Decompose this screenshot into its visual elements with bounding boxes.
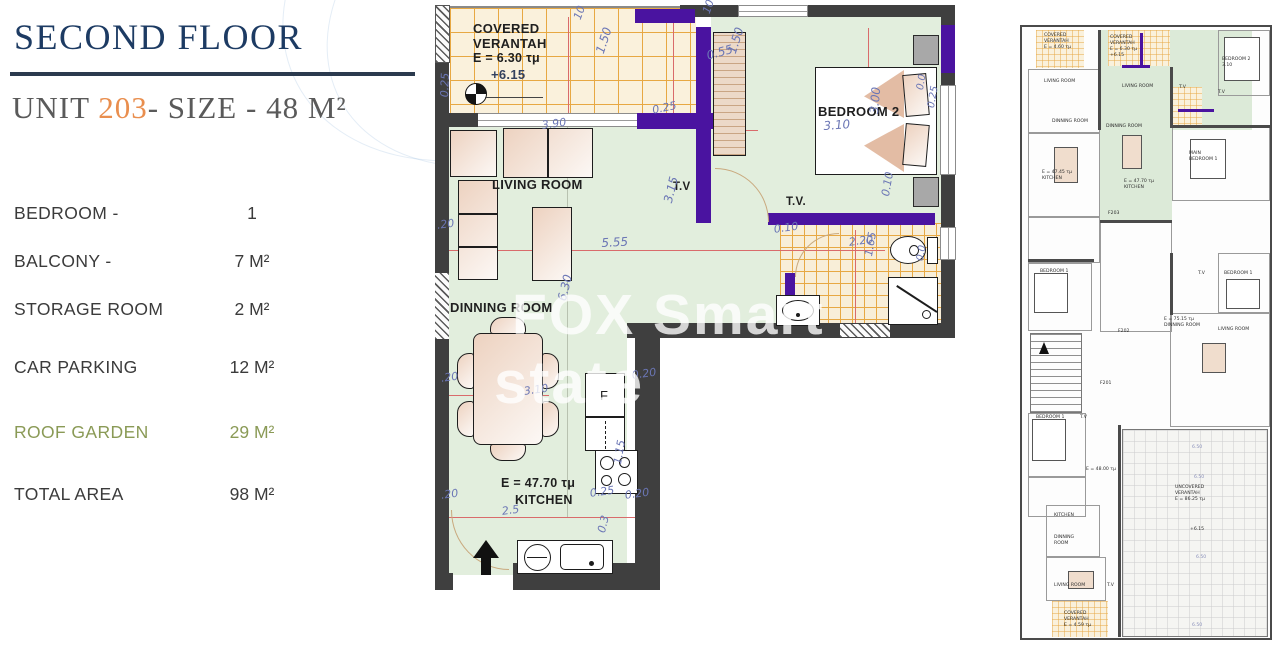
room-label-kitchen: KITCHEN — [515, 493, 573, 507]
room-label-dinning: DINNING ROOM — [450, 300, 553, 315]
dining-chair — [457, 353, 474, 389]
coffee-table — [532, 207, 572, 281]
mini-bed — [1190, 139, 1226, 179]
spec-value: 2 M² — [212, 299, 292, 320]
kitchen-sink-counter — [517, 540, 613, 574]
washing-machine — [524, 544, 551, 571]
unit-subtitle: UNIT 203- SIZE - 48 M² — [12, 90, 347, 126]
pillow — [902, 123, 930, 167]
bathroom-sink — [776, 295, 820, 326]
toilet-tank — [927, 237, 938, 264]
accent-wall — [635, 9, 695, 23]
bedroom-side-window — [940, 85, 956, 175]
dining-chair — [490, 317, 526, 334]
bedside-table — [913, 177, 939, 207]
info-panel: SECOND FLOOR UNIT 203- SIZE - 48 M² BEDR… — [0, 0, 430, 651]
room-label-tv-right: T.V. — [786, 196, 806, 208]
mini-dining-table — [1122, 135, 1142, 169]
level-label: +6.15 — [491, 67, 525, 82]
mini-uncovered-verandah — [1122, 429, 1268, 637]
right-wall — [941, 175, 955, 227]
bed — [815, 67, 937, 175]
pillow — [902, 73, 930, 117]
title-divider — [10, 72, 415, 76]
level-underline — [485, 97, 543, 98]
overview-floor-plan: COVERED VERANTAH E = 4.60 τμCOVERED VERA… — [1020, 25, 1272, 640]
unit-prefix: UNIT — [12, 90, 98, 125]
toilet — [890, 236, 926, 264]
dining-chair — [542, 401, 559, 437]
mini-dining-table — [1054, 147, 1078, 183]
floor-plan-page: SECOND FLOOR UNIT 203- SIZE - 48 M² BEDR… — [0, 0, 1280, 651]
main-floor-plan: F COVERED VERANTAH E — [435, 5, 991, 591]
bedroom-window — [738, 5, 808, 17]
dining-chair — [490, 444, 526, 461]
room-label-bedroom2: BEDROOM 2 — [818, 104, 899, 119]
kitchen-counter — [585, 417, 625, 451]
mini-verandah — [1036, 30, 1084, 68]
spec-value: 12 M² — [212, 357, 292, 378]
spec-row-parking: CAR PARKING 12 M² — [14, 357, 314, 383]
accent-wall — [941, 25, 955, 73]
chaise-sofa — [458, 180, 498, 280]
wall-hatched-segment — [840, 324, 890, 337]
wardrobe — [713, 32, 746, 156]
dining-chair — [457, 401, 474, 437]
overview-label: E = 48.00 τμ — [1086, 467, 1116, 473]
overview-label: T.V — [1198, 271, 1205, 277]
spec-row-storage: STORAGE ROOM 2 M² — [14, 299, 314, 325]
page-title: SECOND FLOOR — [14, 16, 303, 58]
spec-value: 1 — [212, 203, 292, 224]
bathroom-window — [940, 227, 956, 260]
room-label-tv-left: T.V — [673, 181, 691, 193]
wall-hatched-column — [435, 273, 449, 339]
spec-label: CAR PARKING — [14, 357, 138, 377]
mini-bed — [1032, 419, 1066, 461]
mini-bed — [1224, 37, 1260, 81]
spec-row-roof-garden: ROOF GARDEN 29 M² — [14, 422, 314, 448]
mini-staircase — [1030, 333, 1082, 413]
spec-value: 29 M² — [212, 422, 292, 443]
overview-label: T.V — [1107, 583, 1114, 589]
room-label-kitchen-area: E = 47.70 τμ — [501, 476, 575, 490]
wall-hatched-column — [435, 5, 450, 63]
sofa — [503, 128, 593, 178]
fridge-label: F — [600, 388, 608, 403]
spec-label: TOTAL AREA — [14, 484, 124, 504]
tv-media-wall — [768, 213, 935, 225]
room-label-verantah: VERANTAH — [473, 36, 547, 51]
overview-label: F201 — [1100, 381, 1111, 387]
bottom-wall — [435, 573, 453, 590]
spec-value: 98 M² — [212, 484, 292, 505]
mini-bathroom-tile — [1172, 87, 1202, 125]
north-symbol-icon — [465, 83, 487, 105]
kitchen-side-wall — [635, 338, 660, 578]
mini-bed — [1226, 279, 1260, 309]
unit-size: - SIZE - 48 M² — [148, 90, 347, 125]
mini-dining-table — [1202, 343, 1226, 373]
spec-row-total-area: TOTAL AREA 98 M² — [14, 484, 314, 510]
spec-label: STORAGE ROOM — [14, 299, 163, 319]
mini-dining-table — [1068, 571, 1094, 589]
spec-label: BALCONY - — [14, 251, 112, 271]
room-label-covered: COVERED — [473, 21, 539, 36]
mini-bed — [1034, 273, 1068, 313]
spec-label: BEDROOM - — [14, 203, 119, 223]
dim-line — [673, 17, 674, 113]
unit-number: 203 — [98, 90, 148, 125]
bedside-table — [913, 35, 939, 65]
kitchen-sink — [560, 544, 604, 570]
verandah-sliding-door — [478, 113, 637, 127]
room-label-living: LIVING ROOM — [492, 177, 583, 192]
stove — [595, 450, 638, 494]
dim-line — [855, 230, 856, 323]
mini-verandah — [1108, 30, 1170, 66]
spec-row-bedroom: BEDROOM - 1 — [14, 203, 314, 229]
verandah-edge — [450, 6, 697, 8]
mini-verandah — [1052, 601, 1108, 637]
dining-chair — [542, 353, 559, 389]
top-wall — [808, 5, 955, 17]
dim-line — [568, 17, 569, 113]
spec-label: ROOF GARDEN — [14, 422, 149, 442]
fridge: F — [585, 373, 625, 417]
verandah-wall — [448, 113, 478, 127]
shower — [888, 277, 938, 325]
armchair — [450, 130, 497, 177]
spec-value: 7 M² — [212, 251, 292, 272]
room-label-verandah-area: E = 6.30 τμ — [473, 51, 540, 65]
dining-table — [473, 333, 543, 445]
accent-wall — [696, 27, 711, 223]
spec-row-balcony: BALCONY - 7 M² — [14, 251, 314, 277]
